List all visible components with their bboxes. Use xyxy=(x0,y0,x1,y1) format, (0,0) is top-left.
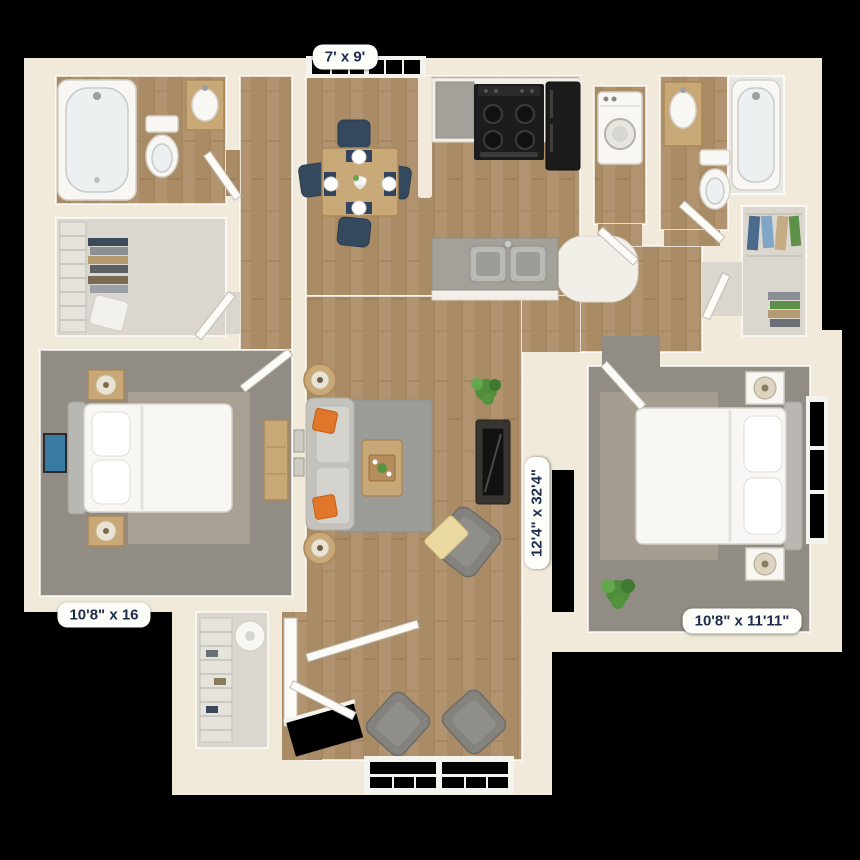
floorplan-drawing xyxy=(0,0,860,860)
dresser-1 xyxy=(264,420,288,500)
bed-2-pillow-b xyxy=(744,478,782,534)
bed-2-pillow-a xyxy=(744,416,782,472)
entry-closet-door-panel xyxy=(284,618,297,726)
sofa xyxy=(306,398,354,530)
living-hall-connector-floor xyxy=(522,296,580,352)
orange-pillow-a xyxy=(312,408,338,434)
kitchen-peninsula xyxy=(432,238,558,300)
toilet-2-tank xyxy=(700,150,730,165)
entry-window xyxy=(364,756,514,794)
bed-1-pillow-a xyxy=(92,412,130,456)
dimension-label-living: 12'4" x 32'4" xyxy=(525,457,550,569)
bed-1-pillow-b xyxy=(92,460,130,504)
orange-pillow-b xyxy=(312,494,337,519)
refrigerator xyxy=(546,82,580,170)
toilet-1-tank xyxy=(146,116,178,132)
walk-in-closet-1 xyxy=(60,222,129,332)
dimension-label-bedroom-right: 10'8" x 11'11" xyxy=(683,609,802,634)
dining-chair-n xyxy=(338,120,370,148)
stove xyxy=(474,84,544,160)
kitchen-halfwall xyxy=(556,236,638,302)
tv-console xyxy=(476,420,510,504)
dimension-label-dining: 7' x 9' xyxy=(313,45,378,70)
bedroom-2-window xyxy=(806,396,828,544)
sink-1 xyxy=(192,89,218,121)
kitchen-faucet xyxy=(504,240,512,248)
tub-faucet-1 xyxy=(93,92,101,100)
hallway-1-floor xyxy=(240,76,292,350)
wall-art-bedroom-1 xyxy=(44,434,66,472)
sink-2 xyxy=(670,92,696,128)
kitchen-wall-stub xyxy=(418,76,432,198)
dining-chair-s xyxy=(337,216,372,247)
coffee-table xyxy=(362,440,402,496)
oven-handle xyxy=(480,152,538,157)
floorplan-canvas: 7' x 9' 10'8" x 16 12'4" x 32'4" 10'8" x… xyxy=(0,0,860,860)
tub-faucet-2 xyxy=(752,92,760,100)
kitchen-counter-left xyxy=(436,82,474,138)
utility-closet xyxy=(598,92,642,164)
dimension-label-bedroom-left: 10'8" x 16 xyxy=(57,603,150,628)
wire-shelf-1 xyxy=(60,222,86,332)
exterior-notch xyxy=(552,470,574,612)
